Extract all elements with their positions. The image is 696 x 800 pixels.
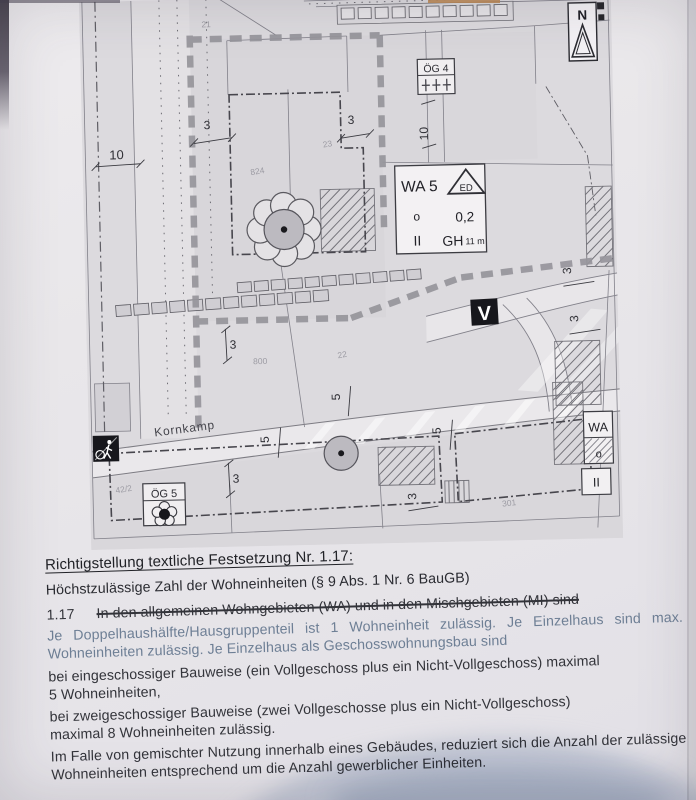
wa5-gh: GH (442, 232, 463, 248)
wa5-ed: ED (459, 183, 473, 194)
dim-3: 3 (233, 472, 240, 486)
dim-5: 5 (430, 427, 444, 434)
site-plan: 10 10 3 3 3 3 3 3 3 5 5 5 21 824 23 800 … (79, 0, 623, 550)
wa5-name: WA 5 (401, 178, 438, 196)
v-sign-letter: V (477, 303, 492, 326)
dim-5: 5 (258, 436, 272, 443)
dim-3: 3 (230, 338, 237, 352)
pedestrian-bicycle-sign-icon (93, 435, 120, 462)
wa-storeys: II (593, 475, 600, 489)
wa-label-box: WA o II (580, 411, 614, 495)
wa5-grz: 0,2 (455, 209, 474, 224)
tree-symbol-small (324, 436, 359, 471)
parcel-number: 800 (253, 356, 268, 366)
wa5-storeys: II (413, 232, 421, 248)
dim-10-right: 10 (417, 126, 431, 140)
photo-edge-left (0, 0, 9, 130)
v-sign: V (470, 298, 498, 326)
dim-5: 5 (329, 393, 343, 400)
og5-title: ÖG 5 (151, 488, 178, 501)
dim-3: 3 (405, 493, 419, 500)
parcel-number: 21 (201, 19, 211, 29)
north-label: N (577, 8, 587, 23)
parcel-number: 22 (337, 349, 348, 360)
wa5-open-building: o (413, 209, 420, 223)
parcel-number: 23 (322, 138, 333, 149)
cross-symbols-icon (422, 79, 451, 92)
garage-row-top (337, 1, 513, 24)
dim-3: 3 (347, 113, 354, 127)
photo-of-plan-document: 10 10 3 3 3 3 3 3 3 5 5 5 21 824 23 800 … (0, 0, 696, 800)
clause-number: 1.17 (46, 607, 74, 624)
tree-symbol-large (246, 192, 322, 268)
og5-label-box: ÖG 5 (143, 483, 186, 526)
dim-10-left: 10 (109, 147, 124, 162)
dim-3: 3 (204, 118, 211, 132)
wa-name: WA (588, 420, 609, 434)
dim-3: 3 (560, 267, 574, 274)
wa5-label-box: WA 5 ED o 0,2 II GH 11 m (395, 164, 487, 254)
dim-3: 3 (567, 315, 581, 322)
photo-background-sliver (428, 0, 500, 3)
photo-edge-top (0, 0, 120, 3)
wa-open-building: o (596, 448, 602, 460)
og4-title: ÖG 4 (423, 63, 449, 76)
text-section: Richtigstellung textliche Festsetzung Nr… (45, 537, 696, 784)
wa5-gh-value: 11 m (465, 236, 485, 246)
og4-label-box: ÖG 4 (417, 59, 455, 95)
parcel-number: 301 (502, 497, 517, 509)
site-plan-map: 10 10 3 3 3 3 3 3 3 5 5 5 21 824 23 800 … (79, 0, 623, 550)
paper-margin-right (689, 0, 696, 800)
